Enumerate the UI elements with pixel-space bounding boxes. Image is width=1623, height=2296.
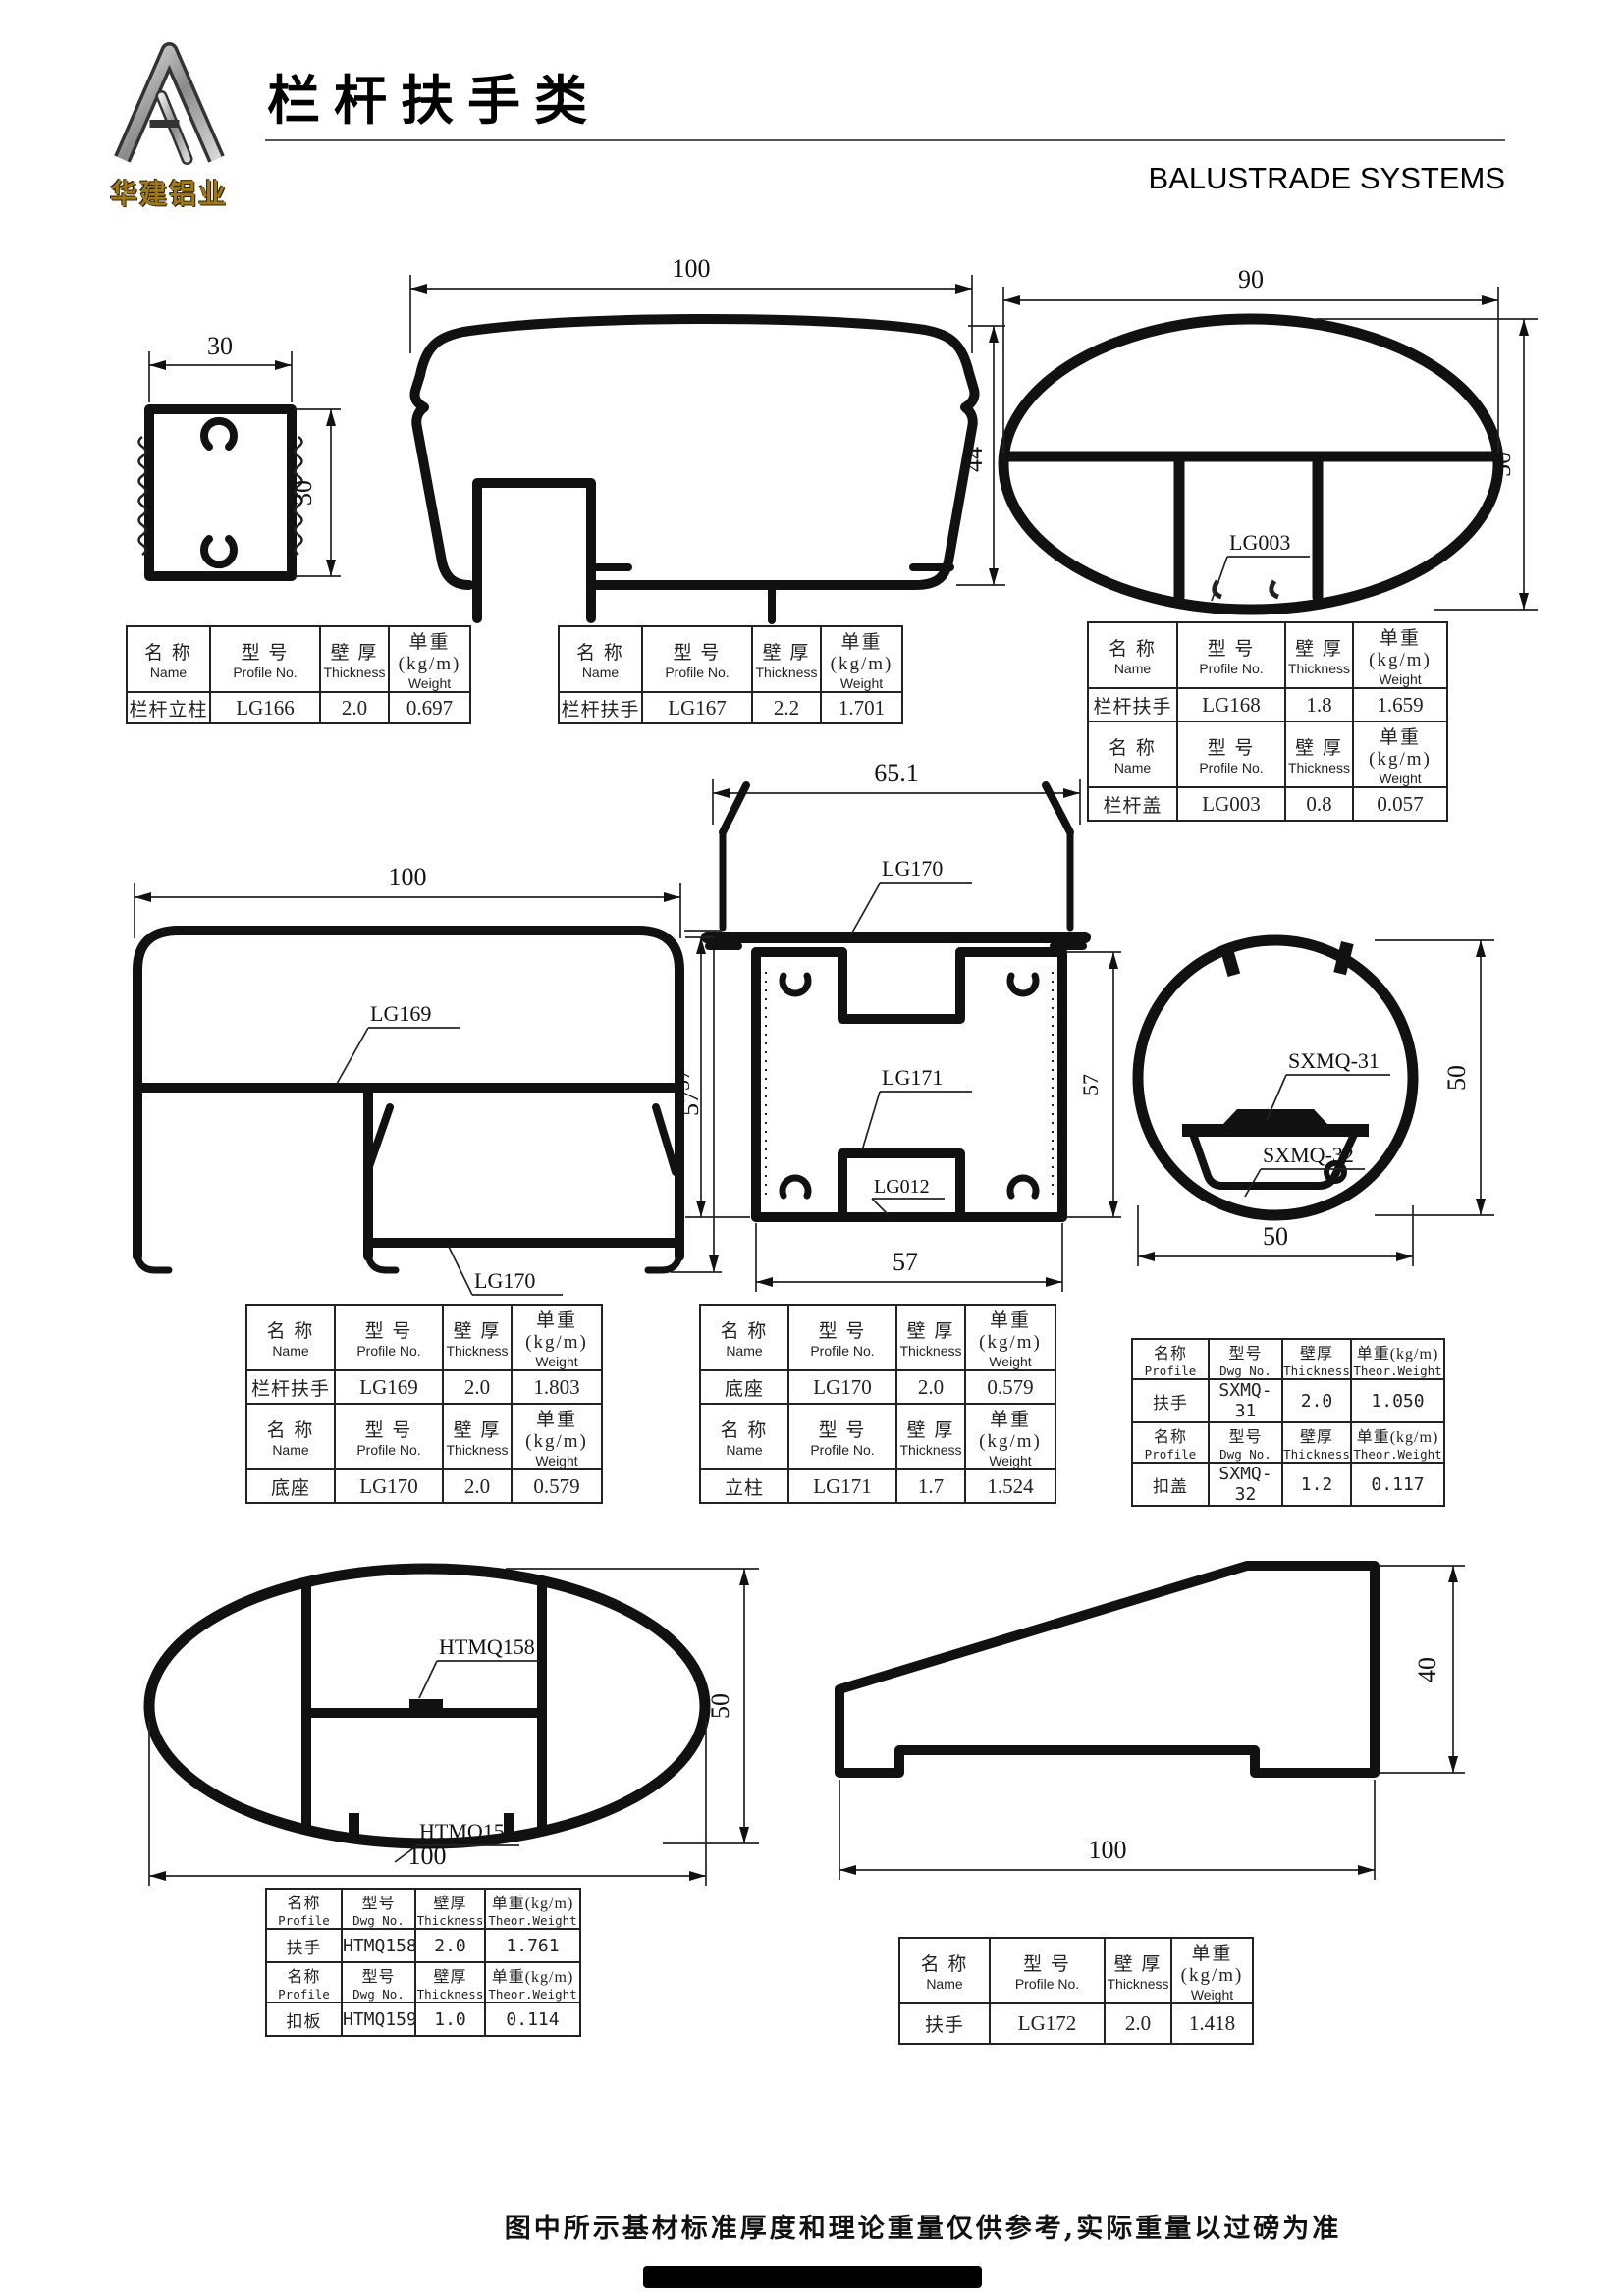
- drawing-sxmq: SXMQ-31 SXMQ-32 50 50: [1129, 881, 1542, 1294]
- header-weight: 单重(kg/m)Weight: [1171, 1938, 1253, 2003]
- header-weight: 单重(kg/m)Weight: [512, 1404, 602, 1469]
- page-title: 栏杆扶手类: [267, 57, 601, 134]
- header-model: 型 号Profile No.: [788, 1404, 896, 1469]
- header-thickness: 壁厚Thickness: [1282, 1422, 1351, 1463]
- dimension-top: 65.1: [713, 759, 1080, 825]
- footer-bar: [643, 2266, 982, 2288]
- cell-model: HTMQ158: [342, 1929, 415, 1962]
- header-model: 型 号Profile No.: [335, 1305, 443, 1370]
- cell-model: LG170: [335, 1469, 443, 1503]
- label-lg003: LG003: [1212, 530, 1310, 601]
- cell-weight: 0.057: [1353, 787, 1447, 821]
- spec-table-sxmq: 名称Profile 型号Dwg No. 壁厚Thickness 单重(kg/m)…: [1131, 1338, 1445, 1507]
- cell-name: 栏杆扶手: [246, 1370, 335, 1404]
- label-htmq158: HTMQ158: [419, 1634, 539, 1698]
- cell-weight: 0.117: [1351, 1463, 1444, 1506]
- cell-name: 栏杆扶手: [1088, 688, 1177, 721]
- cell-name: 栏杆立柱: [127, 692, 210, 723]
- profile-lg167: [414, 319, 974, 620]
- drawing-lg166: 30 30: [93, 257, 368, 596]
- header-thickness: 壁厚Thickness: [1282, 1339, 1351, 1379]
- footer-note: 图中所示基材标准厚度和理论重量仅供参考,实际重量以过磅为准: [452, 2207, 1394, 2245]
- cell-model: LG169: [335, 1370, 443, 1404]
- header-name: 名称Profile: [1132, 1422, 1209, 1463]
- header-thickness: 壁厚Thickness: [415, 1889, 485, 1929]
- header-thickness: 壁 厚Thickness: [896, 1305, 965, 1370]
- cell-thickness: 2.0: [1282, 1379, 1351, 1422]
- profile-sxmq: [1138, 940, 1413, 1215]
- svg-text:LG169: LG169: [370, 1001, 431, 1026]
- cell-weight: 1.524: [965, 1469, 1055, 1503]
- dim-label: 57: [670, 1069, 694, 1091]
- drawing-htmq: HTMQ158 HTMQ159 50 100: [113, 1524, 781, 1947]
- dim-label: 100: [1089, 1836, 1127, 1864]
- header-name: 名 称Name: [559, 626, 642, 692]
- header-thickness: 壁 厚Thickness: [1285, 622, 1353, 688]
- cell-name: 扣板: [266, 2002, 342, 2036]
- header-model: 型 号Profile No.: [642, 626, 752, 692]
- cell-thickness: 2.0: [443, 1370, 512, 1404]
- dim-label: 40: [1413, 1657, 1441, 1682]
- cell-name: 扶手: [266, 1929, 342, 1962]
- header-model: 型号Dwg No.: [1209, 1422, 1282, 1463]
- header-weight: 单重(kg/m)Weight: [965, 1305, 1055, 1370]
- cell-name: 底座: [700, 1370, 788, 1404]
- spec-table-lg172: 名 称Name 型 号Profile No. 壁 厚Thickness 单重(k…: [898, 1937, 1254, 2045]
- header-thickness: 壁厚Thickness: [415, 1962, 485, 2002]
- company-logo-text: 华建铝业: [82, 173, 255, 212]
- cell-thickness: 1.2: [1282, 1463, 1351, 1506]
- header-weight: 单重(kg/m)Theor.Weight: [485, 1889, 580, 1929]
- dimension-right: 57: [1066, 952, 1121, 1217]
- spec-table-lg168-lg003: 名 称Name 型 号Profile No. 壁 厚Thickness 单重(k…: [1087, 621, 1448, 822]
- cell-model: HTMQ159: [342, 2002, 415, 2036]
- label-lg012: LG012: [872, 1176, 945, 1214]
- header-model: 型 号Profile No.: [335, 1404, 443, 1469]
- spec-table-htmq: 名称Profile 型号Dwg No. 壁厚Thickness 单重(kg/m)…: [265, 1888, 581, 2037]
- cell-model: LG167: [642, 692, 752, 723]
- header-model: 型号Dwg No.: [1209, 1339, 1282, 1379]
- dim-label: 50: [1442, 1065, 1471, 1091]
- spec-table-lg166: 名 称Name 型 号Profile No. 壁 厚Thickness 单重(k…: [126, 625, 471, 724]
- header-model: 型 号Profile No.: [990, 1938, 1105, 2003]
- cell-thickness: 1.0: [415, 2002, 485, 2036]
- cell-model: LG170: [788, 1370, 896, 1404]
- dimension-right: 40: [1380, 1566, 1465, 1773]
- cell-name: 扶手: [1132, 1379, 1209, 1422]
- cell-thickness: 2.2: [752, 692, 821, 723]
- cell-thickness: 2.0: [415, 1929, 485, 1962]
- svg-text:LG012: LG012: [874, 1176, 930, 1198]
- header-thickness: 壁 厚Thickness: [1105, 1938, 1171, 2003]
- cell-weight: 1.418: [1171, 2003, 1253, 2044]
- header-thickness: 壁 厚Thickness: [1285, 721, 1353, 787]
- cell-model: LG172: [990, 2003, 1105, 2044]
- header-name: 名 称Name: [1088, 622, 1177, 688]
- cell-thickness: 0.8: [1285, 787, 1353, 821]
- cell-weight: 0.114: [485, 2002, 580, 2036]
- drawing-lg169: 100 LG169 LG170 57: [83, 862, 722, 1304]
- svg-text:LG171: LG171: [882, 1065, 943, 1090]
- profile-lg169: [137, 931, 679, 1270]
- header-weight: 单重(kg/m)Weight: [821, 626, 902, 692]
- label-lg170: LG170: [449, 1247, 563, 1295]
- header-name: 名 称Name: [700, 1305, 788, 1370]
- cell-thickness: 1.7: [896, 1469, 965, 1503]
- dim-label: 50: [1488, 452, 1516, 477]
- svg-text:SXMQ-31: SXMQ-31: [1288, 1048, 1380, 1073]
- header-weight: 单重(kg/m)Weight: [1353, 721, 1447, 787]
- svg-text:LG003: LG003: [1229, 530, 1290, 555]
- cell-name: 扶手: [899, 2003, 990, 2044]
- svg-text:SXMQ-32: SXMQ-32: [1263, 1143, 1354, 1167]
- header-name: 名 称Name: [899, 1938, 990, 2003]
- drawing-lg168: 90 50 LG003: [982, 243, 1551, 621]
- dim-label: 90: [1238, 265, 1264, 294]
- header-name: 名 称Name: [246, 1305, 335, 1370]
- cell-model: LG168: [1177, 688, 1285, 721]
- header-thickness: 壁 厚Thickness: [443, 1305, 512, 1370]
- cell-weight: 0.579: [965, 1370, 1055, 1404]
- cell-model: SXMQ-32: [1209, 1463, 1282, 1506]
- spec-table-lg170-lg171: 名 称Name 型 号Profile No. 壁 厚Thickness 单重(k…: [699, 1304, 1056, 1504]
- header-thickness: 壁 厚Thickness: [320, 626, 389, 692]
- cell-model: LG003: [1177, 787, 1285, 821]
- dimension-left: 57: [670, 937, 750, 1217]
- dim-label: 57: [893, 1248, 918, 1276]
- header-weight: 单重(kg/m)Weight: [512, 1305, 602, 1370]
- cell-weight: 0.697: [389, 692, 470, 723]
- dim-label: 30: [289, 480, 317, 506]
- header-weight: 单重(kg/m)Weight: [389, 626, 470, 692]
- dimension-bottom: 100: [839, 1780, 1375, 1880]
- header-name: 名 称Name: [127, 626, 210, 692]
- cell-weight: 1.659: [1353, 688, 1447, 721]
- cell-name: 立柱: [700, 1469, 788, 1503]
- company-logo-icon: [93, 35, 245, 173]
- header-thickness: 壁 厚Thickness: [896, 1404, 965, 1469]
- dim-label: 50: [706, 1693, 734, 1719]
- cell-model: LG171: [788, 1469, 896, 1503]
- drawing-lg172: 40 100: [815, 1544, 1522, 1956]
- svg-text:HTMQ158: HTMQ158: [439, 1634, 535, 1659]
- cell-name: 底座: [246, 1469, 335, 1503]
- cell-weight: 1.050: [1351, 1379, 1444, 1422]
- cell-thickness: 2.0: [1105, 2003, 1171, 2044]
- header-model: 型 号Profile No.: [1177, 721, 1285, 787]
- dim-label: 65.1: [874, 759, 919, 787]
- header-weight: 单重(kg/m)Theor.Weight: [1351, 1339, 1444, 1379]
- profile-lg168: [1003, 319, 1498, 610]
- dimension-bottom: 57: [756, 1223, 1062, 1292]
- header-thickness: 壁 厚Thickness: [752, 626, 821, 692]
- cell-weight: 1.761: [485, 1929, 580, 1962]
- header-name: 名称Profile: [266, 1889, 342, 1929]
- svg-text:LG170: LG170: [882, 856, 943, 881]
- dimension-right: 50: [1375, 940, 1494, 1215]
- cell-thickness: 2.0: [320, 692, 389, 723]
- header-thickness: 壁 厚Thickness: [443, 1404, 512, 1469]
- header-model: 型号Dwg No.: [342, 1962, 415, 2002]
- svg-text:LG170: LG170: [474, 1268, 535, 1293]
- header-model: 型 号Profile No.: [788, 1305, 896, 1370]
- cell-weight: 0.579: [512, 1469, 602, 1503]
- dim-label: 30: [207, 332, 233, 360]
- header-model: 型号Dwg No.: [342, 1889, 415, 1929]
- cell-name: 扣盖: [1132, 1463, 1209, 1506]
- header-weight: 单重(kg/m)Theor.Weight: [1351, 1422, 1444, 1463]
- header-rule: [265, 139, 1505, 141]
- catalog-page: 华建铝业 栏杆扶手类 BALUSTRADE SYSTEMS 30 30: [0, 0, 1623, 2296]
- cell-thickness: 2.0: [443, 1469, 512, 1503]
- header-name: 名 称Name: [246, 1404, 335, 1469]
- spec-table-lg167: 名 称Name 型 号Profile No. 壁 厚Thickness 单重(k…: [558, 625, 903, 724]
- dim-label: 100: [673, 254, 711, 283]
- cell-weight: 1.803: [512, 1370, 602, 1404]
- drawing-lg167: 100 44: [383, 236, 1011, 623]
- label-lg169: LG169: [337, 1001, 460, 1084]
- cell-weight: 1.701: [821, 692, 902, 723]
- page-subtitle: BALUSTRADE SYSTEMS: [982, 161, 1505, 196]
- cell-thickness: 2.0: [896, 1370, 965, 1404]
- svg-text:HTMQ159: HTMQ159: [419, 1819, 515, 1843]
- header-weight: 单重(kg/m)Theor.Weight: [485, 1962, 580, 2002]
- label-lg170: LG170: [852, 856, 972, 933]
- header-model: 型 号Profile No.: [210, 626, 320, 692]
- dim-label: 50: [1263, 1222, 1288, 1251]
- cell-model: SXMQ-31: [1209, 1379, 1282, 1422]
- header-model: 型 号Profile No.: [1177, 622, 1285, 688]
- cell-model: LG166: [210, 692, 320, 723]
- profile-htmq: [149, 1569, 705, 1843]
- header-weight: 单重(kg/m)Weight: [965, 1404, 1055, 1469]
- dim-label: 100: [389, 863, 427, 891]
- header-name: 名称Profile: [266, 1962, 342, 2002]
- header-name: 名称Profile: [1132, 1339, 1209, 1379]
- profile-lg166: [139, 409, 302, 576]
- dim-label: 100: [408, 1842, 447, 1870]
- header-weight: 单重(kg/m)Weight: [1353, 622, 1447, 688]
- dimension-top: 100: [410, 254, 972, 353]
- drawing-lg170-lg171: 65.1 LG170 LG171: [677, 746, 1139, 1315]
- profile-lg172: [839, 1566, 1375, 1773]
- cell-thickness: 1.8: [1285, 688, 1353, 721]
- header-name: 名 称Name: [700, 1404, 788, 1469]
- spec-table-lg169-lg170: 名 称Name 型 号Profile No. 壁 厚Thickness 单重(k…: [245, 1304, 603, 1504]
- dim-label: 57: [1078, 1074, 1103, 1095]
- dimension-top: 30: [149, 332, 292, 402]
- label-lg171: LG171: [862, 1065, 972, 1150]
- cell-name: 栏杆扶手: [559, 692, 642, 723]
